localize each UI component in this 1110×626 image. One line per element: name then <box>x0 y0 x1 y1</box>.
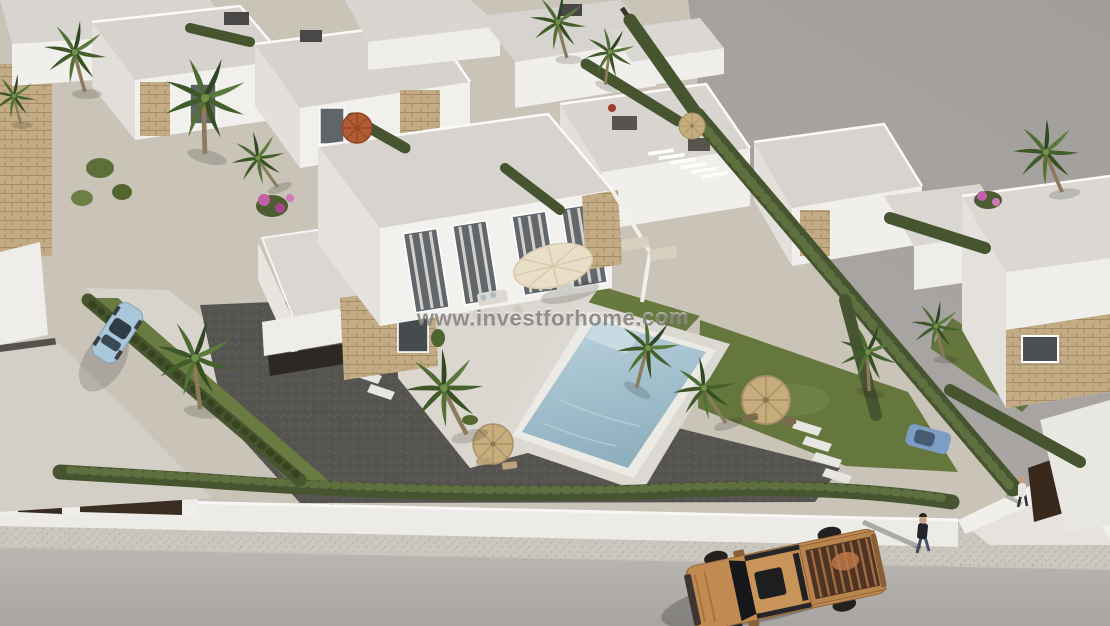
orange-umbrella <box>342 113 372 143</box>
aerial-render-image: www.investforhome.com www.investforhome.… <box>0 0 1110 626</box>
watermark-text: www.investforhome.com <box>416 306 689 331</box>
bougainvillea-right <box>974 191 1002 209</box>
watermark: www.investforhome.com www.investforhome.… <box>416 304 689 331</box>
render-canvas: www.investforhome.com www.investforhome.… <box>0 0 1110 626</box>
